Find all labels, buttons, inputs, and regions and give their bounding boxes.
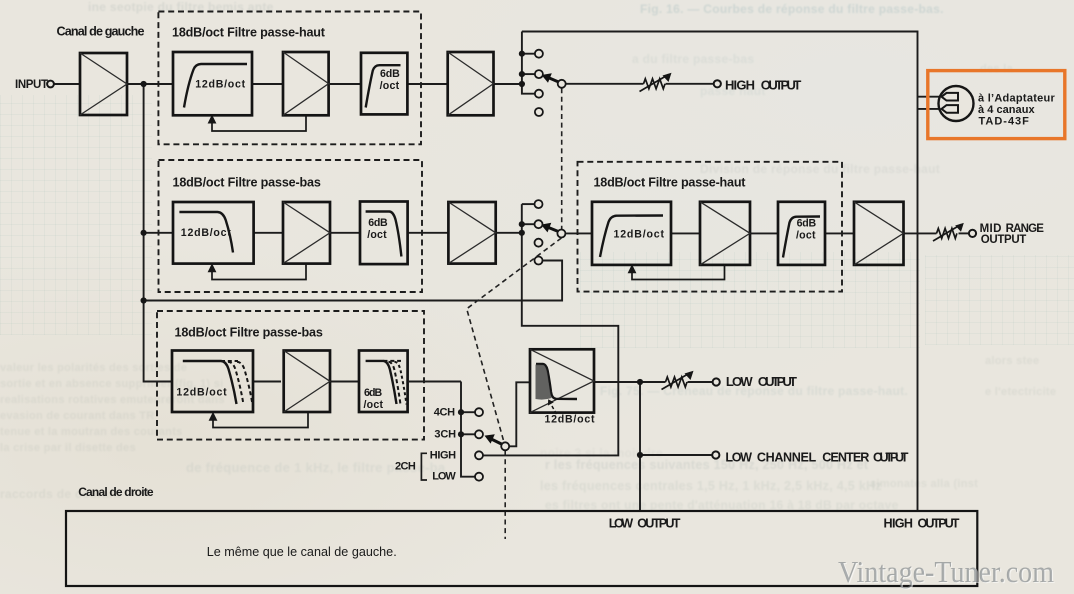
svg-text:3CH: 3CH <box>434 429 456 441</box>
svg-text:4CH: 4CH <box>434 407 455 419</box>
svg-text:Le même que le canal de gauche: Le même que le canal de gauche. <box>207 545 397 559</box>
svg-text:12dB/oct: 12dB/oct <box>176 386 227 398</box>
svg-text:/oct: /oct <box>367 229 387 241</box>
svg-text:/oct: /oct <box>380 80 400 92</box>
svg-text:12dB/oct: 12dB/oct <box>195 79 245 91</box>
svg-text:TAD-43F: TAD-43F <box>979 116 1030 128</box>
svg-text:6dB: 6dB <box>364 387 383 399</box>
svg-text:12dB/oct: 12dB/oct <box>614 228 665 240</box>
svg-text:LOWCHANNELCENTEROUTPUT: LOWCHANNELCENTEROUTPUT <box>725 450 908 464</box>
svg-text:/oct: /oct <box>364 399 384 411</box>
svg-text:Canal de gauche: Canal de gauche <box>57 25 145 39</box>
svg-text:18dB/oct Filtre passe-bas: 18dB/oct Filtre passe-bas <box>173 175 321 189</box>
svg-text:18dB/oct Filtre passe-bas: 18dB/oct Filtre passe-bas <box>175 325 323 339</box>
svg-text:LOWOUTPUT: LOWOUTPUT <box>609 517 681 531</box>
svg-text:HIGHOUTPUT: HIGHOUTPUT <box>884 517 960 531</box>
svg-text:OUTPUT: OUTPUT <box>981 234 1027 246</box>
svg-text:à l’Adaptateur: à l’Adaptateur <box>978 93 1056 105</box>
svg-text:à 4 canaux: à 4 canaux <box>978 104 1035 116</box>
svg-text:Vintage-Tuner.com: Vintage-Tuner.com <box>838 554 1054 589</box>
svg-text:18dB/oct Filtre passe-haut: 18dB/oct Filtre passe-haut <box>172 25 326 39</box>
svg-text:18dB/oct Filtre passe-haut: 18dB/oct Filtre passe-haut <box>594 175 747 189</box>
svg-text:INPUT: INPUT <box>15 79 48 91</box>
svg-text:HIGH: HIGH <box>430 450 456 462</box>
svg-text:12dB/oct: 12dB/oct <box>181 227 231 239</box>
svg-text:LOW: LOW <box>432 470 456 482</box>
svg-text:6dB: 6dB <box>368 217 388 229</box>
svg-text:/oct: /oct <box>796 230 816 242</box>
svg-text:12dB/oct: 12dB/oct <box>545 414 595 426</box>
svg-text:Canal de droite: Canal de droite <box>78 485 154 499</box>
svg-text:HIGHOUTPUT: HIGHOUTPUT <box>725 77 801 92</box>
svg-text:LOWOUTPUT: LOWOUTPUT <box>726 374 797 389</box>
svg-text:6dB: 6dB <box>380 68 400 80</box>
svg-text:2CH: 2CH <box>395 460 416 472</box>
svg-text:6dB: 6dB <box>797 218 817 230</box>
